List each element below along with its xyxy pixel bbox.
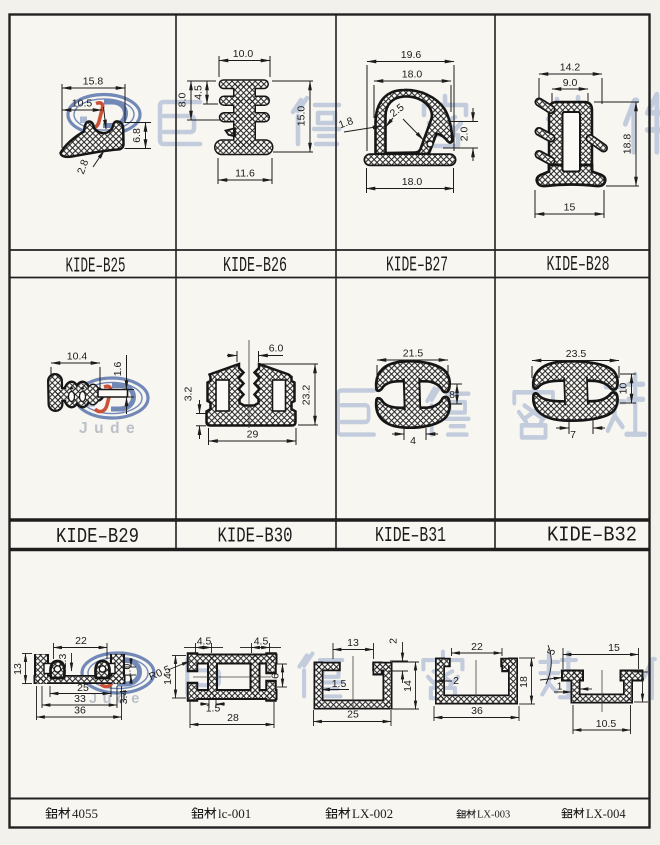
svg-text:10.0: 10.0 bbox=[233, 48, 254, 60]
svg-text:1.5: 1.5 bbox=[332, 678, 347, 690]
svg-text:8.0: 8.0 bbox=[177, 93, 189, 108]
svg-text:4: 4 bbox=[410, 435, 416, 447]
svg-text:25: 25 bbox=[347, 709, 359, 721]
svg-text:KIDE–B27: KIDE–B27 bbox=[386, 255, 448, 278]
svg-text:22: 22 bbox=[75, 635, 87, 647]
svg-text:28: 28 bbox=[227, 712, 239, 724]
svg-text:18.0: 18.0 bbox=[402, 176, 423, 188]
svg-text:29: 29 bbox=[247, 429, 259, 441]
svg-text:19.6: 19.6 bbox=[401, 49, 422, 61]
svg-text:4055: 4055 bbox=[72, 806, 98, 821]
svg-text:13: 13 bbox=[347, 637, 359, 649]
svg-text:1.5: 1.5 bbox=[206, 703, 221, 715]
svg-text:2: 2 bbox=[388, 638, 400, 644]
svg-text:22: 22 bbox=[471, 641, 483, 653]
svg-text:33: 33 bbox=[74, 693, 86, 705]
svg-text:18.8: 18.8 bbox=[622, 134, 634, 155]
svg-text:KIDE–B30: KIDE–B30 bbox=[218, 526, 293, 549]
svg-text:15.8: 15.8 bbox=[83, 76, 104, 88]
svg-text:LX-004: LX-004 bbox=[586, 807, 626, 821]
svg-text:3.2: 3.2 bbox=[183, 387, 195, 402]
svg-text:6.0: 6.0 bbox=[269, 343, 284, 355]
svg-text:6: 6 bbox=[270, 673, 282, 679]
svg-text:KIDE–B32: KIDE–B32 bbox=[547, 525, 637, 548]
svg-text:1.6: 1.6 bbox=[112, 362, 124, 377]
svg-text:18: 18 bbox=[518, 676, 530, 688]
svg-text:15.0: 15.0 bbox=[296, 106, 308, 127]
svg-text:2.0: 2.0 bbox=[459, 127, 471, 142]
svg-text:1.0: 1.0 bbox=[122, 664, 134, 679]
svg-text:14: 14 bbox=[402, 680, 414, 692]
svg-text:6.8: 6.8 bbox=[131, 128, 143, 143]
svg-text:lc-001: lc-001 bbox=[218, 806, 251, 821]
svg-text:15: 15 bbox=[564, 202, 576, 214]
svg-text:9.0: 9.0 bbox=[563, 77, 578, 89]
svg-text:LX-003: LX-003 bbox=[477, 810, 510, 821]
svg-text:13: 13 bbox=[12, 663, 24, 675]
svg-text:14.2: 14.2 bbox=[560, 62, 581, 74]
svg-text:8: 8 bbox=[449, 389, 455, 401]
svg-text:4.5: 4.5 bbox=[254, 636, 269, 648]
svg-text:KIDE–B31: KIDE–B31 bbox=[375, 525, 446, 548]
svg-text:KIDE–B25: KIDE–B25 bbox=[66, 256, 126, 279]
svg-text:21.5: 21.5 bbox=[403, 348, 424, 360]
svg-text:15: 15 bbox=[608, 642, 620, 654]
svg-text:14: 14 bbox=[162, 673, 174, 685]
svg-text:KIDE–B28: KIDE–B28 bbox=[547, 254, 610, 277]
svg-text:3.4: 3.4 bbox=[118, 690, 130, 705]
svg-text:23.5: 23.5 bbox=[566, 348, 587, 360]
svg-text:10: 10 bbox=[618, 383, 630, 395]
svg-text:11.6: 11.6 bbox=[235, 168, 255, 180]
svg-text:36: 36 bbox=[471, 705, 483, 717]
svg-text:KIDE–B26: KIDE–B26 bbox=[223, 255, 287, 278]
svg-text:KIDE–B29: KIDE–B29 bbox=[56, 526, 139, 549]
svg-text:18.0: 18.0 bbox=[402, 69, 423, 81]
svg-text:2: 2 bbox=[453, 675, 459, 687]
svg-text:4.5: 4.5 bbox=[193, 85, 205, 100]
svg-text:Jude: Jude bbox=[79, 420, 141, 437]
svg-text:LX-002: LX-002 bbox=[352, 806, 393, 821]
svg-text:10.5: 10.5 bbox=[72, 98, 93, 110]
svg-text:10.4: 10.4 bbox=[67, 351, 88, 363]
svg-text:7: 7 bbox=[570, 429, 576, 441]
svg-text:1: 1 bbox=[557, 681, 563, 693]
svg-text:23.2: 23.2 bbox=[301, 385, 313, 406]
svg-text:10.5: 10.5 bbox=[596, 718, 617, 730]
svg-text:36: 36 bbox=[74, 705, 86, 717]
svg-text:4.5: 4.5 bbox=[197, 636, 212, 648]
svg-text:1.3: 1.3 bbox=[57, 654, 69, 669]
